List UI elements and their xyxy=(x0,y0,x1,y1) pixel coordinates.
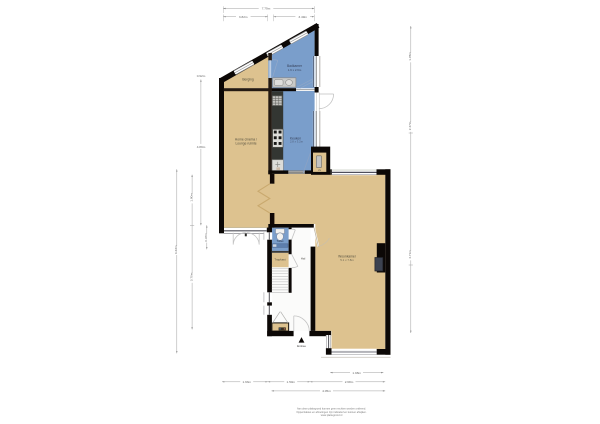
svg-text:1.50m: 1.50m xyxy=(286,380,295,384)
svg-text:Oppervlaktes en afmetingen zij: Oppervlaktes en afmetingen zijn indicati… xyxy=(296,410,367,414)
svg-text:Lounge ruimte: Lounge ruimte xyxy=(235,141,256,145)
svg-text:2.68m: 2.68m xyxy=(345,380,354,384)
svg-text:4.89m: 4.89m xyxy=(197,145,206,149)
svg-text:Hal: Hal xyxy=(301,256,306,260)
svg-text:3.82m: 3.82m xyxy=(239,15,248,19)
svg-text:Aan deze plattegrond kunnen ge: Aan deze plattegrond kunnen geen rechten… xyxy=(297,406,366,410)
svg-text:0.97m: 0.97m xyxy=(204,233,208,242)
svg-text:4.05m: 4.05m xyxy=(322,389,331,393)
svg-text:1.63m: 1.63m xyxy=(242,380,251,384)
svg-text:www.plattegrond.nl: www.plattegrond.nl xyxy=(321,413,343,417)
svg-text:1.80m: 1.80m xyxy=(189,193,193,202)
svg-text:Toilet: Toilet xyxy=(277,239,284,243)
svg-text:6.63m: 6.63m xyxy=(174,245,178,254)
svg-text:7.79m: 7.79m xyxy=(262,7,271,11)
svg-text:Trapkast: Trapkast xyxy=(274,258,285,262)
svg-text:1.05m: 1.05m xyxy=(408,52,412,61)
svg-text:3.49m: 3.49m xyxy=(298,15,307,19)
svg-text:3.70m: 3.70m xyxy=(189,272,193,281)
svg-text:1.9 x 2.6m: 1.9 x 2.6m xyxy=(288,68,302,72)
svg-text:4.71m: 4.71m xyxy=(408,250,412,259)
svg-text:5.1 x 7.8m: 5.1 x 7.8m xyxy=(340,258,354,262)
svg-text:2.8 x 3.2m: 2.8 x 3.2m xyxy=(290,140,304,144)
svg-text:Entree: Entree xyxy=(297,344,306,348)
svg-text:Berging: Berging xyxy=(242,77,254,81)
svg-text:2.47m: 2.47m xyxy=(408,121,412,130)
svg-text:0.92m: 0.92m xyxy=(197,74,206,78)
svg-text:1.98m: 1.98m xyxy=(352,371,361,375)
